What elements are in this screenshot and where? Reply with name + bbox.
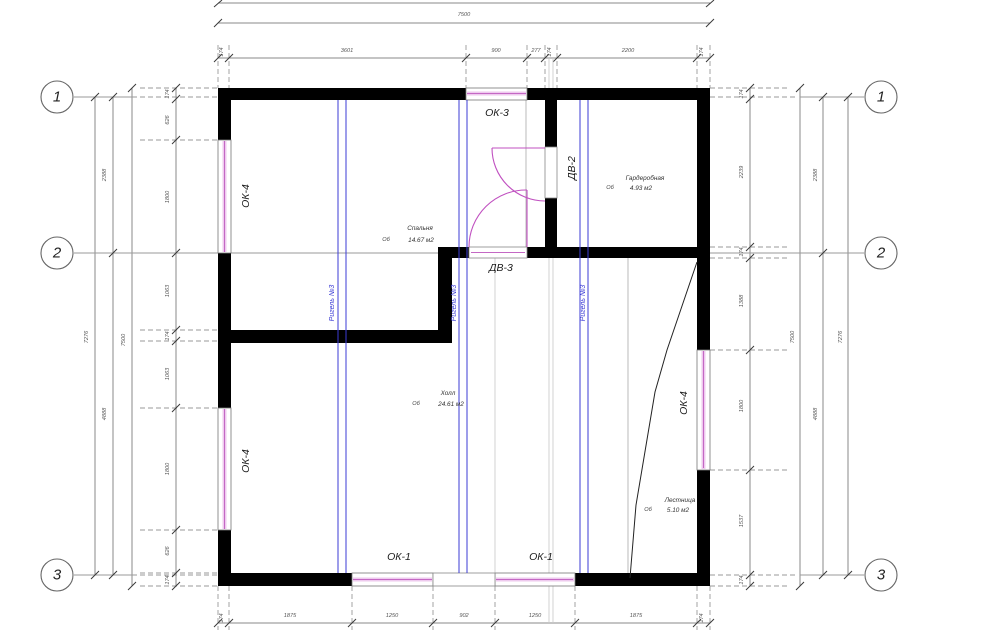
left-dim-lines [95,88,176,586]
wall-bottom-right-segment [575,573,710,586]
dim-left-5: 1063 [165,367,171,380]
label-door-dv2: ДВ-2 [566,156,578,181]
dim-top-4: 174 [547,47,553,56]
dim-left-6: 1800 [165,462,171,475]
room-wardrobe: Об Гардеробная 4.93 м2 [606,174,665,192]
label-window-ok4-left-top: ОК-4 [240,184,252,208]
wall-right-lower-segment [697,470,710,586]
window-ok4-right [697,350,710,470]
stairs [630,262,697,578]
wall-bedroom-bottom [218,330,452,343]
wall-wardrobe-left-lower [545,198,557,253]
axis-number-right-3: 3 [877,567,886,584]
wall-top-left-segment [218,88,466,100]
ticks-right [746,84,852,590]
dim-right-overall: 7500 [790,330,796,343]
dim-left-7: 626 [165,545,171,555]
dim-bot-3: 902 [459,613,469,619]
dim-right-6: 174 [739,575,745,584]
dimension-labels: 7500 174 3601 900 277 174 2200 174 174 1… [84,12,844,623]
dim-left-4: 174 [165,331,171,340]
dim-right-2: 174 [739,247,745,256]
room-labels: Об Спальня 14.67 м2 Об Гардеробная 4.93 … [382,174,696,514]
label-window-ok3: ОК-3 [485,107,509,119]
door-dv3-swing [469,190,527,247]
label-window-ok4-left-bottom: ОК-4 [240,449,252,473]
dim-left-span-1: 4888 [102,407,108,420]
wall-bottom-left-segment [218,573,352,586]
dim-right-axis-total: 7276 [838,330,844,343]
room-name: Гардеробная [626,174,665,182]
room-area: 14.67 м2 [408,237,434,244]
dim-left-8: 174 [165,575,171,584]
axis-number-right-2: 2 [876,245,886,262]
wall-right-upper-segment [697,88,710,350]
floor-plan-page: 7500 174 3601 900 277 174 2200 174 174 1… [0,0,1000,639]
dim-bot-0: 174 [219,613,225,622]
dim-left-3: 1063 [165,284,171,297]
label-window-ok4-right: ОК-4 [678,391,690,415]
room-marker: Об [412,401,420,407]
beam-line-3 [580,100,588,573]
floor-plan-canvas: 7500 174 3601 900 277 174 2200 174 174 1… [0,0,1000,639]
window-ok1-bottom-right [495,573,575,586]
stair-run-line [630,262,697,578]
room-area: 24.61 м2 [437,401,464,408]
dim-right-0: 174 [739,89,745,98]
room-area: 4.93 м2 [630,185,653,192]
dim-right-span-0: 2388 [813,168,819,182]
beam-label-3: Ригель №3 [580,285,587,322]
dim-left-span-0: 2388 [102,168,108,182]
walls [218,88,710,586]
label-window-ok1-right: ОК-1 [529,551,553,563]
dim-left-0: 174 [165,89,171,98]
dim-top-3: 277 [530,48,541,54]
window-ok1-bottom-left [352,573,433,586]
axis-number-left-1: 1 [53,89,61,106]
ticks-top [214,0,714,62]
dim-right-3: 1388 [739,294,745,307]
dim-top-2: 900 [491,48,501,54]
dim-left-1: 626 [165,114,171,124]
wall-wardrobe-bottom [527,247,710,258]
dim-top-0: 174 [219,47,225,56]
wall-left-lower-segment [218,530,231,586]
window-ok3-top [466,88,527,100]
axis-number-right-1: 1 [877,89,885,106]
room-name: Лестница [664,497,696,504]
dim-left-axis-total: 7276 [84,330,90,343]
projection-lines-left [140,88,218,586]
dim-top-1: 3601 [341,48,353,54]
dim-bot-6: 174 [699,613,705,622]
axis-number-left-2: 2 [52,245,62,262]
wall-bedroom-step [438,247,452,343]
room-hall: Об Холл 24.61 м2 [412,390,464,408]
beam-line-2 [459,100,467,573]
construction-lines [495,58,553,623]
door-dv2-opening [545,147,557,198]
room-marker: Об [644,507,652,513]
right-dim-lines [750,88,848,586]
label-door-dv3: ДВ-3 [488,262,513,274]
label-window-ok1-left: ОК-1 [387,551,411,563]
dim-left-overall: 7500 [121,333,127,346]
dim-right-1: 2239 [739,166,745,179]
room-stairs: Об Лестница 5.10 м2 [644,497,696,514]
dim-bot-5: 1875 [630,613,643,619]
room-marker: Об [382,237,390,243]
dim-right-span-1: 4888 [813,407,819,420]
projection-lines-top [218,45,710,88]
room-name: Холл [440,390,456,397]
dim-overall-width: 7500 [458,12,471,18]
entrance-opening [433,573,495,586]
dim-bot-4: 1250 [529,613,542,619]
dim-right-4: 1800 [739,399,745,412]
room-area: 5.10 м2 [667,507,690,514]
axis-number-left-3: 3 [53,567,62,584]
dim-bot-1: 1875 [284,613,297,619]
beam-label-1: Ригель №3 [329,285,336,322]
dim-top-5: 2200 [621,48,635,54]
window-ok4-left-top [218,140,231,253]
room-bedroom: Об Спальня 14.67 м2 [382,225,434,244]
beam-label-2: Ригель №3 [451,285,458,322]
wall-wardrobe-left-upper [545,100,557,147]
door-dv2-swing [492,148,545,201]
dim-bot-2: 1250 [386,613,399,619]
room-marker: Об [606,185,614,191]
window-ok4-left-bottom [218,408,231,530]
wall-left-upper-segment [218,88,231,140]
room-name: Спальня [407,225,433,232]
wall-top-right-segment [527,88,710,100]
dim-right-5: 1537 [739,514,745,527]
axis-lines [74,97,864,575]
dim-left-2: 1800 [165,190,171,203]
dim-top-6: 174 [699,47,705,56]
